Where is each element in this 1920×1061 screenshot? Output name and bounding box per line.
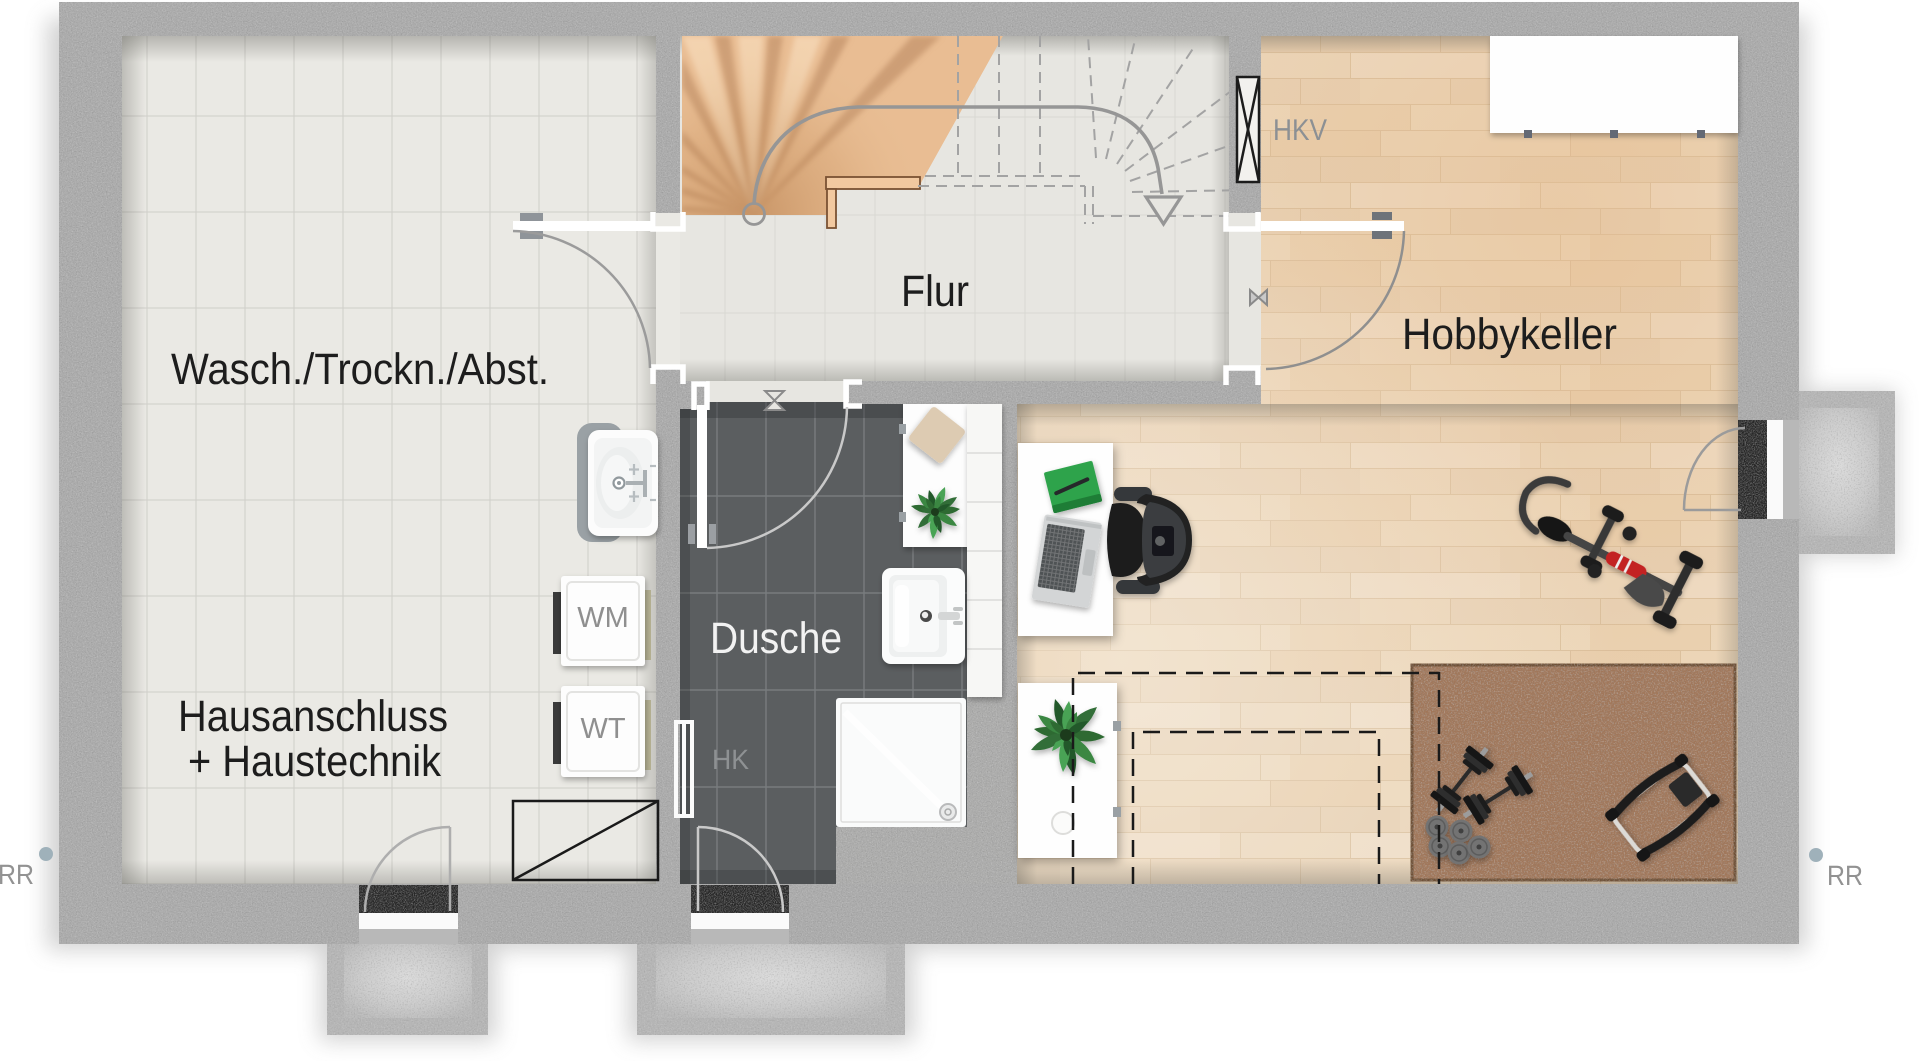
svg-text:Hausanschluss: Hausanschluss (178, 692, 448, 741)
svg-text:HK: HK (712, 744, 749, 775)
svg-text:Dusche: Dusche (710, 614, 842, 663)
svg-text:RR: RR (1827, 860, 1863, 891)
svg-text:+ Haustechnik: + Haustechnik (188, 737, 442, 786)
svg-text:Hobbykeller: Hobbykeller (1402, 310, 1617, 359)
svg-text:Wasch./Trockn./Abst.: Wasch./Trockn./Abst. (171, 345, 549, 394)
svg-text:WT: WT (580, 713, 625, 745)
svg-text:HKV: HKV (1273, 114, 1327, 147)
svg-text:WM: WM (577, 602, 629, 634)
svg-text:Flur: Flur (901, 267, 969, 316)
svg-text:RR: RR (0, 859, 34, 890)
